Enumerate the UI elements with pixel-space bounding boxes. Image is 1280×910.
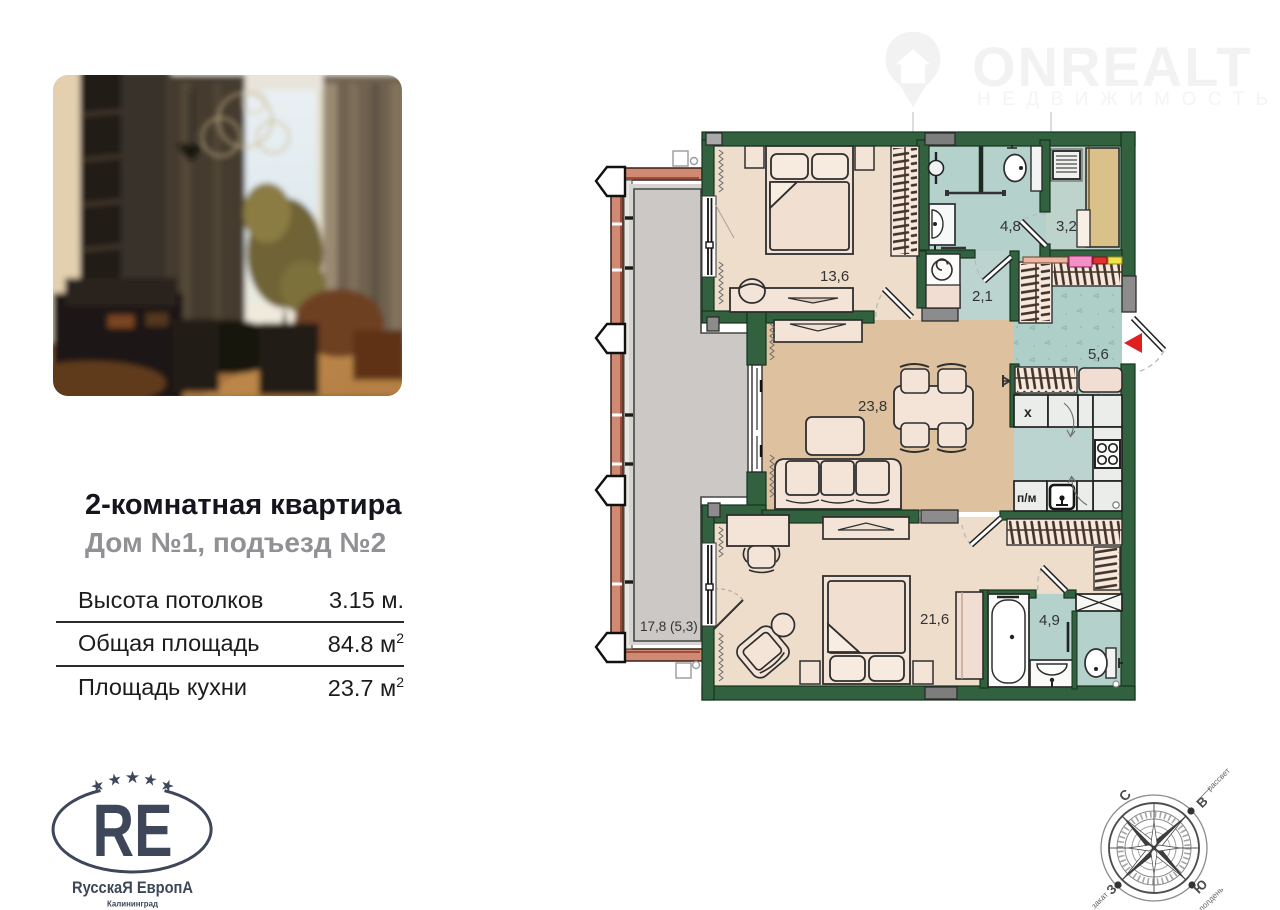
svg-text:23,8: 23,8	[858, 398, 887, 415]
svg-text:п/м: п/м	[1017, 491, 1037, 505]
svg-text:17,8 (5,3): 17,8 (5,3)	[640, 619, 698, 634]
svg-text:2,1: 2,1	[972, 288, 993, 305]
svg-text:Ю: Ю	[1190, 876, 1210, 896]
svg-text:5,6: 5,6	[1088, 346, 1109, 363]
svg-text:21,6: 21,6	[920, 611, 949, 628]
svg-text:х: х	[1024, 404, 1032, 420]
svg-text:4,8: 4,8	[1000, 218, 1021, 235]
svg-text:4,9: 4,9	[1039, 612, 1060, 629]
svg-text:3,2: 3,2	[1056, 218, 1077, 235]
svg-text:С: С	[1116, 786, 1134, 804]
svg-text:13,6: 13,6	[820, 268, 849, 285]
svg-text:закат: закат	[1090, 890, 1111, 910]
